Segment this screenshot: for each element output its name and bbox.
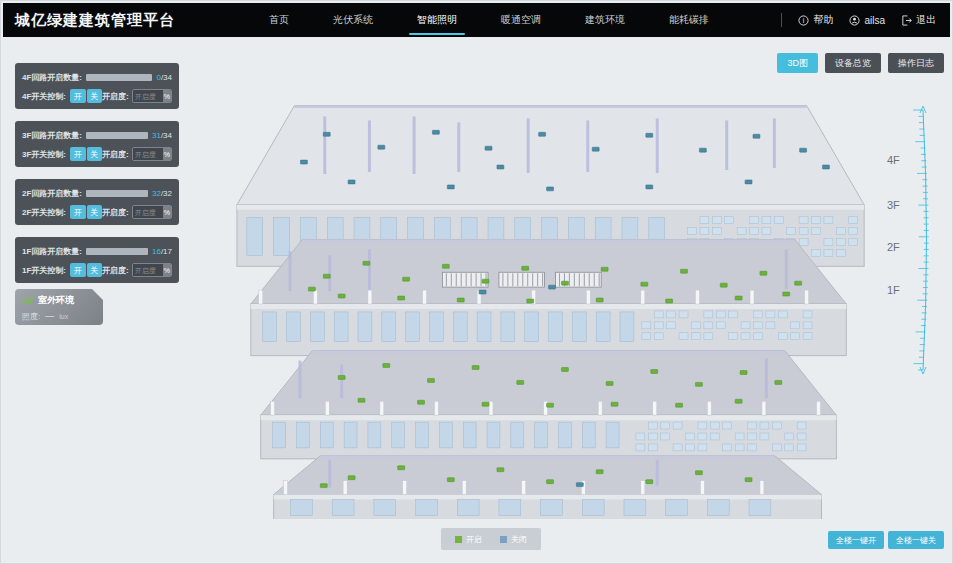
switch-off-button[interactable]: 关 [87, 205, 103, 219]
floor-zoom-scale[interactable] [907, 104, 935, 376]
light-on-marker [775, 380, 782, 384]
light-on-marker [735, 399, 742, 403]
circuit-count-label: 2F回路开启数量: [22, 188, 82, 199]
light-off-marker [822, 165, 829, 169]
switch-control-label: 1F开关控制: [22, 265, 66, 276]
dim-unit-button[interactable]: % [163, 263, 171, 277]
bulk-actions: 全楼一键开 全楼一键关 [828, 531, 944, 549]
light-on-marker [783, 292, 790, 296]
user-icon [849, 15, 860, 26]
light-off-marker [323, 132, 330, 136]
light-on-marker [363, 261, 370, 265]
floor-panel-4f: 4F回路开启数量: 0/34 4F开关控制: 开 关 开启度: % [15, 63, 179, 109]
light-off-marker [745, 180, 752, 184]
light-on-marker [547, 480, 554, 484]
light-on-marker [795, 281, 802, 285]
outdoor-env-icon [22, 296, 34, 305]
light-on-marker [383, 364, 390, 368]
circuit-count-label: 1F回路开启数量: [22, 246, 82, 257]
dim-level-label: 开启度: [102, 149, 129, 160]
help-icon: i [798, 15, 809, 26]
illuminance-unit: lux [59, 313, 68, 320]
light-on-marker [398, 296, 405, 300]
help-button[interactable]: i 帮助 [798, 13, 833, 27]
logout-icon [901, 15, 912, 26]
light-on-marker [338, 375, 345, 379]
light-on-marker [695, 471, 702, 475]
light-on-marker [735, 296, 742, 300]
dim-level-box: % [132, 89, 172, 103]
light-off-marker [432, 130, 439, 134]
switch-on-button[interactable]: 开 [70, 205, 86, 219]
app-title: 城亿绿建建筑管理平台 [15, 11, 175, 30]
light-on-marker [681, 269, 688, 273]
light-off-marker [539, 132, 546, 136]
legend-off-label: 关闭 [511, 534, 527, 545]
light-off-marker [497, 165, 504, 169]
light-off-marker [753, 134, 760, 138]
nav-item-building-env[interactable]: 建筑环境 [583, 9, 627, 31]
light-off-marker [547, 187, 554, 191]
light-on-marker [338, 294, 345, 298]
light-on-marker [320, 484, 327, 488]
main-nav: 首页 光伏系统 智能照明 暖通空调 建筑环境 能耗碳排 [267, 9, 711, 31]
switch-on-button[interactable]: 开 [70, 263, 86, 277]
dim-unit-button[interactable]: % [163, 147, 171, 161]
circuit-progress-bar [86, 248, 148, 255]
switch-on-button[interactable]: 开 [70, 147, 86, 161]
all-floors-on-button[interactable]: 全楼一键开 [828, 531, 884, 549]
circuit-count-label: 3F回路开启数量: [22, 130, 82, 141]
circuit-progress-bar [86, 74, 152, 81]
light-on-marker [308, 287, 315, 291]
light-on-marker [398, 466, 405, 470]
light-off-marker [447, 185, 454, 189]
floor-label-1f: 1F [887, 284, 900, 296]
circuit-count-label: 4F回路开启数量: [22, 72, 82, 83]
light-on-marker [517, 380, 524, 384]
light-on-marker [651, 370, 658, 374]
floor-label-3f: 3F [887, 199, 900, 211]
building-3d-view[interactable] [229, 89, 884, 519]
circuit-count-value: 0/34 [156, 73, 172, 82]
logout-label: 退出 [916, 13, 936, 27]
switch-control-label: 2F开关控制: [22, 207, 66, 218]
dim-level-box: % [132, 205, 172, 219]
light-off-marker [699, 148, 706, 152]
light-on-marker [611, 402, 618, 406]
light-on-marker [442, 264, 449, 268]
view-toolbar: 3D图 设备总览 操作日志 [777, 53, 944, 73]
light-on-marker [427, 378, 434, 382]
light-on-marker [561, 368, 568, 372]
light-on-marker [606, 381, 613, 385]
light-on-marker [641, 282, 648, 286]
help-label: 帮助 [813, 13, 833, 27]
svg-text:i: i [803, 16, 805, 23]
operation-log-button[interactable]: 操作日志 [888, 53, 944, 73]
switch-off-button[interactable]: 关 [87, 147, 103, 161]
light-on-marker [348, 476, 355, 480]
building-floor-2F[interactable] [261, 351, 837, 459]
dim-level-box: % [132, 263, 172, 277]
light-on-marker [596, 470, 603, 474]
legend-on-swatch [455, 536, 462, 543]
light-off-marker [646, 133, 653, 137]
legend-off-swatch [500, 536, 507, 543]
circuit-count-value: 16/17 [152, 247, 172, 256]
building-floor-3F[interactable] [251, 239, 846, 355]
switch-on-button[interactable]: 开 [70, 89, 86, 103]
topbar-right: i 帮助 ailsa 退出 [781, 13, 936, 27]
light-off-marker [378, 145, 385, 149]
switch-control-label: 4F开关控制: [22, 91, 66, 102]
topbar-divider [781, 13, 782, 27]
light-off-marker [646, 185, 653, 189]
outdoor-env-panel: 室外环境 照度: — lux [15, 289, 103, 325]
light-on-marker [547, 403, 554, 407]
light-on-marker [522, 266, 529, 270]
nav-item-hvac[interactable]: 暖通空调 [499, 9, 543, 31]
light-on-marker [695, 382, 702, 386]
light-on-marker [740, 370, 747, 374]
app-window: 城亿绿建建筑管理平台 首页 光伏系统 智能照明 暖通空调 建筑环境 能耗碳排 i… [0, 0, 953, 564]
light-on-marker [646, 480, 653, 484]
dim-unit-button[interactable]: % [163, 89, 171, 103]
dim-level-label: 开启度: [102, 91, 129, 102]
light-off-marker [800, 148, 807, 152]
light-on-marker [482, 279, 489, 283]
light-on-marker [760, 271, 767, 275]
dim-level-input[interactable] [133, 90, 163, 102]
light-on-marker [323, 274, 330, 278]
logout-button[interactable]: 退出 [901, 13, 936, 27]
nav-item-smart-lighting[interactable]: 智能照明 [415, 9, 459, 31]
circuit-progress-bar [86, 190, 148, 197]
dim-level-input[interactable] [133, 148, 163, 160]
light-status-legend: 开启 关闭 [441, 528, 541, 550]
light-on-marker [596, 298, 603, 302]
device-overview-button[interactable]: 设备总览 [825, 53, 881, 73]
switch-off-button[interactable]: 关 [87, 89, 103, 103]
floor-label-4f: 4F [887, 154, 900, 166]
circuit-count-value: 32/32 [152, 189, 172, 198]
dim-level-input[interactable] [133, 206, 163, 218]
switch-control-label: 3F开关控制: [22, 149, 66, 160]
building-floor-1F[interactable] [274, 456, 822, 519]
legend-on-label: 开启 [466, 534, 482, 545]
light-off-marker [485, 146, 492, 150]
dim-level-label: 开启度: [102, 207, 129, 218]
light-on-marker [720, 283, 727, 287]
nav-item-home[interactable]: 首页 [267, 9, 291, 31]
light-off-marker [592, 147, 599, 151]
dim-level-label: 开启度: [102, 265, 129, 276]
username: ailsa [864, 15, 885, 26]
dim-level-input[interactable] [133, 264, 163, 276]
illuminance-value: — [45, 311, 54, 321]
floor-label-2f: 2F [887, 241, 900, 253]
light-on-marker [676, 403, 683, 407]
switch-off-button[interactable]: 关 [87, 263, 103, 277]
floor-panel-2f: 2F回路开启数量: 32/32 2F开关控制: 开 关 开启度: % [15, 179, 179, 225]
light-on-marker [527, 299, 534, 303]
light-off-marker [348, 180, 355, 184]
light-off-marker [549, 285, 556, 289]
light-on-marker [666, 299, 673, 303]
top-bar: 城亿绿建建筑管理平台 首页 光伏系统 智能照明 暖通空调 建筑环境 能耗碳排 i… [3, 3, 950, 37]
floor-panel-1f: 1F回路开启数量: 16/17 1F开关控制: 开 关 开启度: % [15, 237, 179, 283]
circuit-progress-bar [86, 132, 148, 139]
light-off-marker [479, 290, 486, 294]
user-menu[interactable]: ailsa [849, 15, 885, 26]
light-on-marker [358, 398, 365, 402]
light-on-marker [403, 277, 410, 281]
illuminance-label: 照度: [22, 311, 40, 322]
nav-item-pv-system[interactable]: 光伏系统 [331, 9, 375, 31]
legend-item-off: 关闭 [500, 534, 527, 545]
view-3d-button[interactable]: 3D图 [777, 53, 818, 73]
light-on-marker [482, 402, 489, 406]
light-on-marker [447, 478, 454, 482]
light-on-marker [601, 267, 608, 271]
light-on-marker [457, 298, 464, 302]
light-on-marker [497, 468, 504, 472]
legend-item-on: 开启 [455, 534, 482, 545]
dim-unit-button[interactable]: % [163, 205, 171, 219]
light-off-marker [300, 160, 307, 164]
light-on-marker [418, 400, 425, 404]
floor-panel-3f: 3F回路开启数量: 31/34 3F开关控制: 开 关 开启度: % [15, 121, 179, 167]
light-on-marker [561, 281, 568, 285]
nav-item-energy-carbon[interactable]: 能耗碳排 [667, 9, 711, 31]
all-floors-off-button[interactable]: 全楼一键关 [888, 531, 944, 549]
light-on-marker [472, 366, 479, 370]
outdoor-env-title: 室外环境 [38, 294, 74, 307]
dim-level-box: % [132, 147, 172, 161]
circuit-count-value: 31/34 [152, 131, 172, 140]
light-off-marker [576, 483, 583, 487]
light-on-marker [745, 478, 752, 482]
